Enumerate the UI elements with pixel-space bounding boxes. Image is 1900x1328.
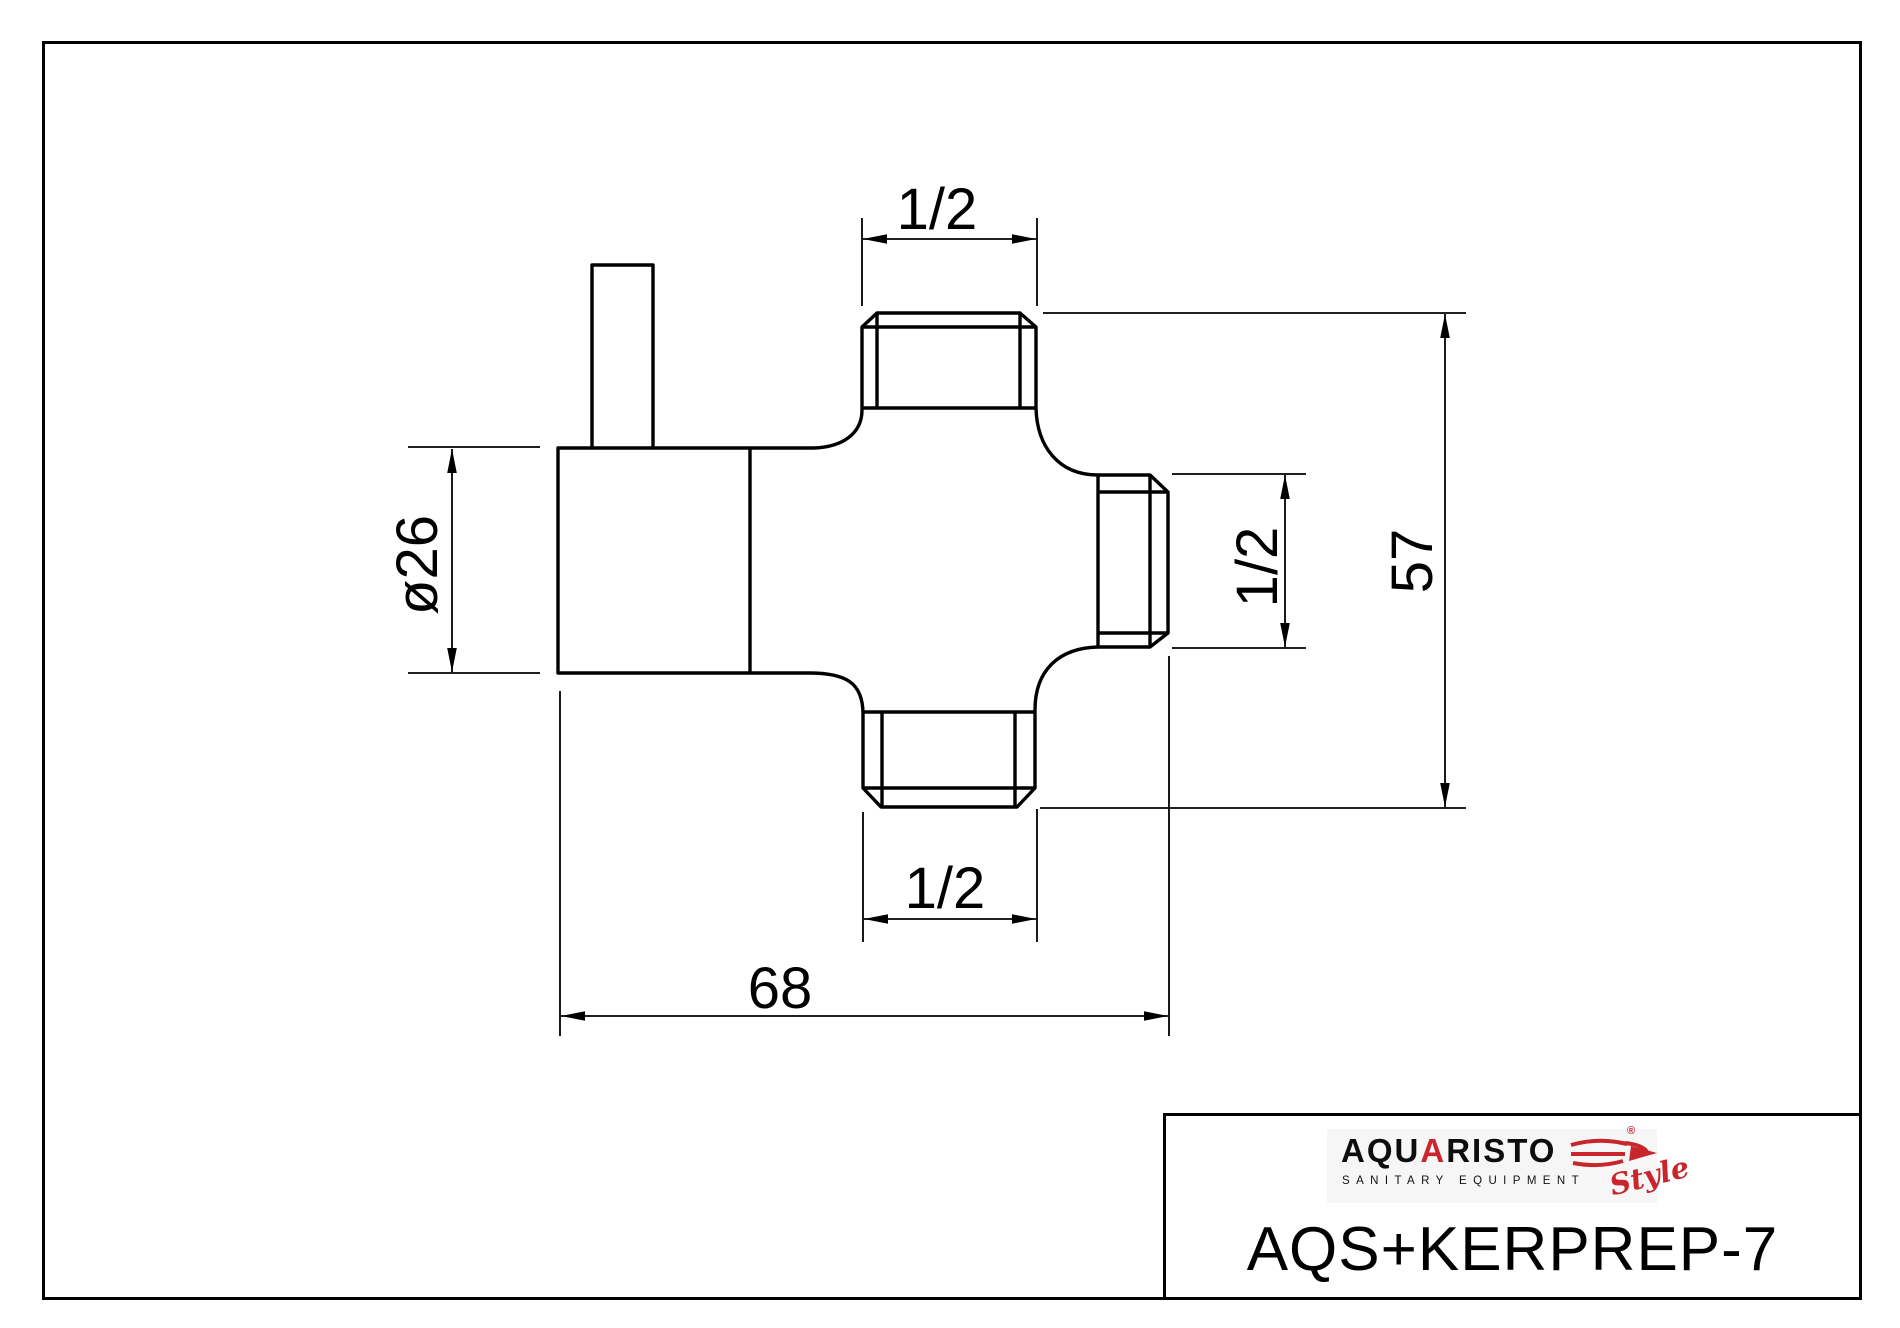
title-block: AQUARISTO ® SANITARY EQUIPMENT Style AQS… [1163,1113,1862,1300]
brand-prefix: AQU [1341,1132,1420,1169]
brand-suffix: RISTO [1446,1132,1556,1169]
dimension-bottom-thread: 1/2 [905,856,986,921]
dimension-overall-width: 68 [748,956,813,1021]
part-outline [558,265,1168,807]
dimension-labels: 1/2 ø26 1/2 57 1/2 68 [385,177,1445,1021]
handle-stub [592,265,653,448]
dimension-body-diameter: ø26 [385,515,450,615]
drawing-sheet: 1/2 ø26 1/2 57 1/2 68 AQUARISTO ® SANITA… [0,0,1900,1328]
registered-trademark-icon: ® [1627,1125,1635,1137]
dimension-top-thread: 1/2 [897,177,978,242]
logo-brand-text: AQUARISTO [1341,1132,1556,1170]
part-number: AQS+KERPREP-7 [1166,1214,1859,1285]
logo-tagline: SANITARY EQUIPMENT [1342,1175,1585,1187]
company-logo: AQUARISTO ® SANITARY EQUIPMENT Style [1327,1129,1657,1203]
dimension-overall-height: 57 [1380,529,1445,594]
dimension-right-thread: 1/2 [1225,527,1290,608]
brand-accent-letter: A [1420,1132,1446,1169]
